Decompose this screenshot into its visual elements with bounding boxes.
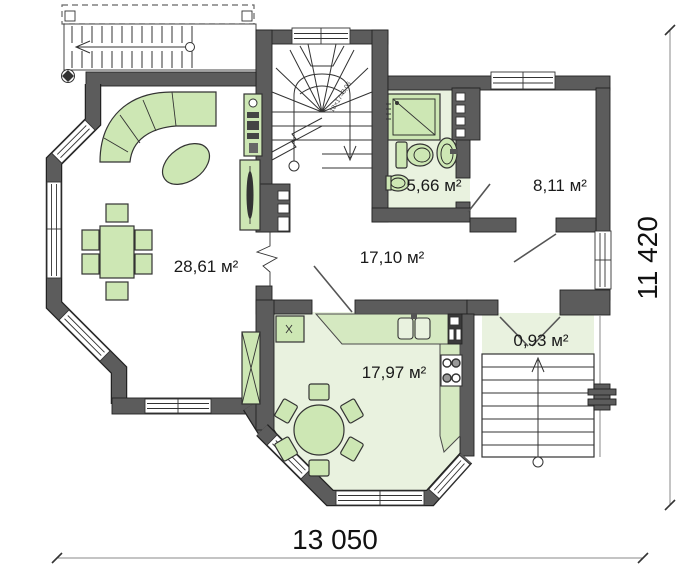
height-dimension-label: 11 420 — [632, 216, 663, 300]
tall-cabinet — [242, 332, 260, 404]
coffee-table — [155, 135, 217, 193]
window-living-south — [145, 399, 211, 413]
width-dimension-label: 13 050 — [292, 524, 378, 555]
stair-treads — [272, 112, 372, 168]
window-kitchen-bay-bottom — [336, 491, 424, 505]
floor-plan-canvas: 18×17=3,06 28,61 м² 17,10 м² 5,66 м² — [0, 0, 700, 575]
exterior-stair-top — [62, 5, 257, 83]
dining-chair — [106, 204, 128, 222]
dining-chair — [135, 230, 152, 250]
washbasin — [437, 138, 458, 168]
kitchen-chair — [309, 460, 329, 476]
window-hall-east — [595, 231, 611, 289]
oven-column — [448, 314, 462, 344]
dining-chair — [106, 282, 128, 300]
kitchen-north-wall-right — [355, 300, 467, 314]
kitchen-door-leaf — [314, 266, 352, 312]
living-north-wall — [86, 72, 256, 86]
interior-staircase: 18×17=3,06 — [272, 44, 372, 171]
porch-label: 0,93 м² — [513, 331, 568, 350]
column-marker — [62, 70, 75, 83]
canopy-post-left — [65, 11, 75, 21]
stove — [441, 355, 462, 386]
dining-table-set — [82, 204, 152, 300]
shower-cabin — [386, 94, 440, 140]
floor-plan-drawing: 18×17=3,06 28,61 м² 17,10 м² 5,66 м² — [0, 0, 700, 575]
kitchen-counter-top — [316, 314, 460, 344]
kitchen-label: 17,97 м² — [362, 363, 427, 382]
washing-machine — [276, 316, 304, 342]
living-room-label: 28,61 м² — [174, 257, 239, 276]
window-living-bay-upper — [52, 120, 95, 163]
dining-chair — [135, 254, 152, 274]
living-hall-opening-breakline — [257, 232, 277, 286]
window-living-bay-lower — [59, 310, 110, 361]
round-table — [294, 405, 344, 455]
kitchen-chair — [309, 384, 329, 400]
media-shelf — [244, 94, 262, 156]
room-label: 8,11 м² — [533, 176, 587, 195]
tv-cabinet — [240, 160, 260, 230]
porch-north-post — [467, 300, 498, 315]
toilet — [396, 142, 433, 168]
window-living-bay-west — [47, 182, 61, 278]
stair-note-label: 18×17=3,06 — [329, 80, 354, 113]
electric-boxes — [278, 191, 289, 231]
porch-corner-block — [560, 290, 610, 315]
canopy-outline — [62, 5, 254, 24]
canopy-post-right — [242, 11, 252, 21]
room-south-wall-right — [556, 218, 596, 232]
dining-table — [100, 226, 134, 278]
window-stairblock — [292, 28, 350, 44]
hall-label: 17,10 м² — [360, 248, 425, 267]
window-room-north — [491, 72, 555, 89]
dining-chair — [82, 254, 99, 274]
bathroom-label: 5,66 м² — [406, 176, 461, 195]
stairblock-east-wall — [372, 30, 388, 222]
bath-south-wall — [372, 208, 470, 222]
room-door-leaf — [514, 234, 556, 262]
stair-winders — [272, 44, 372, 112]
dining-chair — [82, 230, 99, 250]
dimension-right: 11 420 — [632, 25, 675, 510]
stair-break-line — [272, 118, 322, 160]
room-south-wall-left — [470, 218, 516, 232]
dimension-bottom: 13 050 — [52, 524, 648, 563]
bathroom-door-leaf — [468, 184, 490, 212]
